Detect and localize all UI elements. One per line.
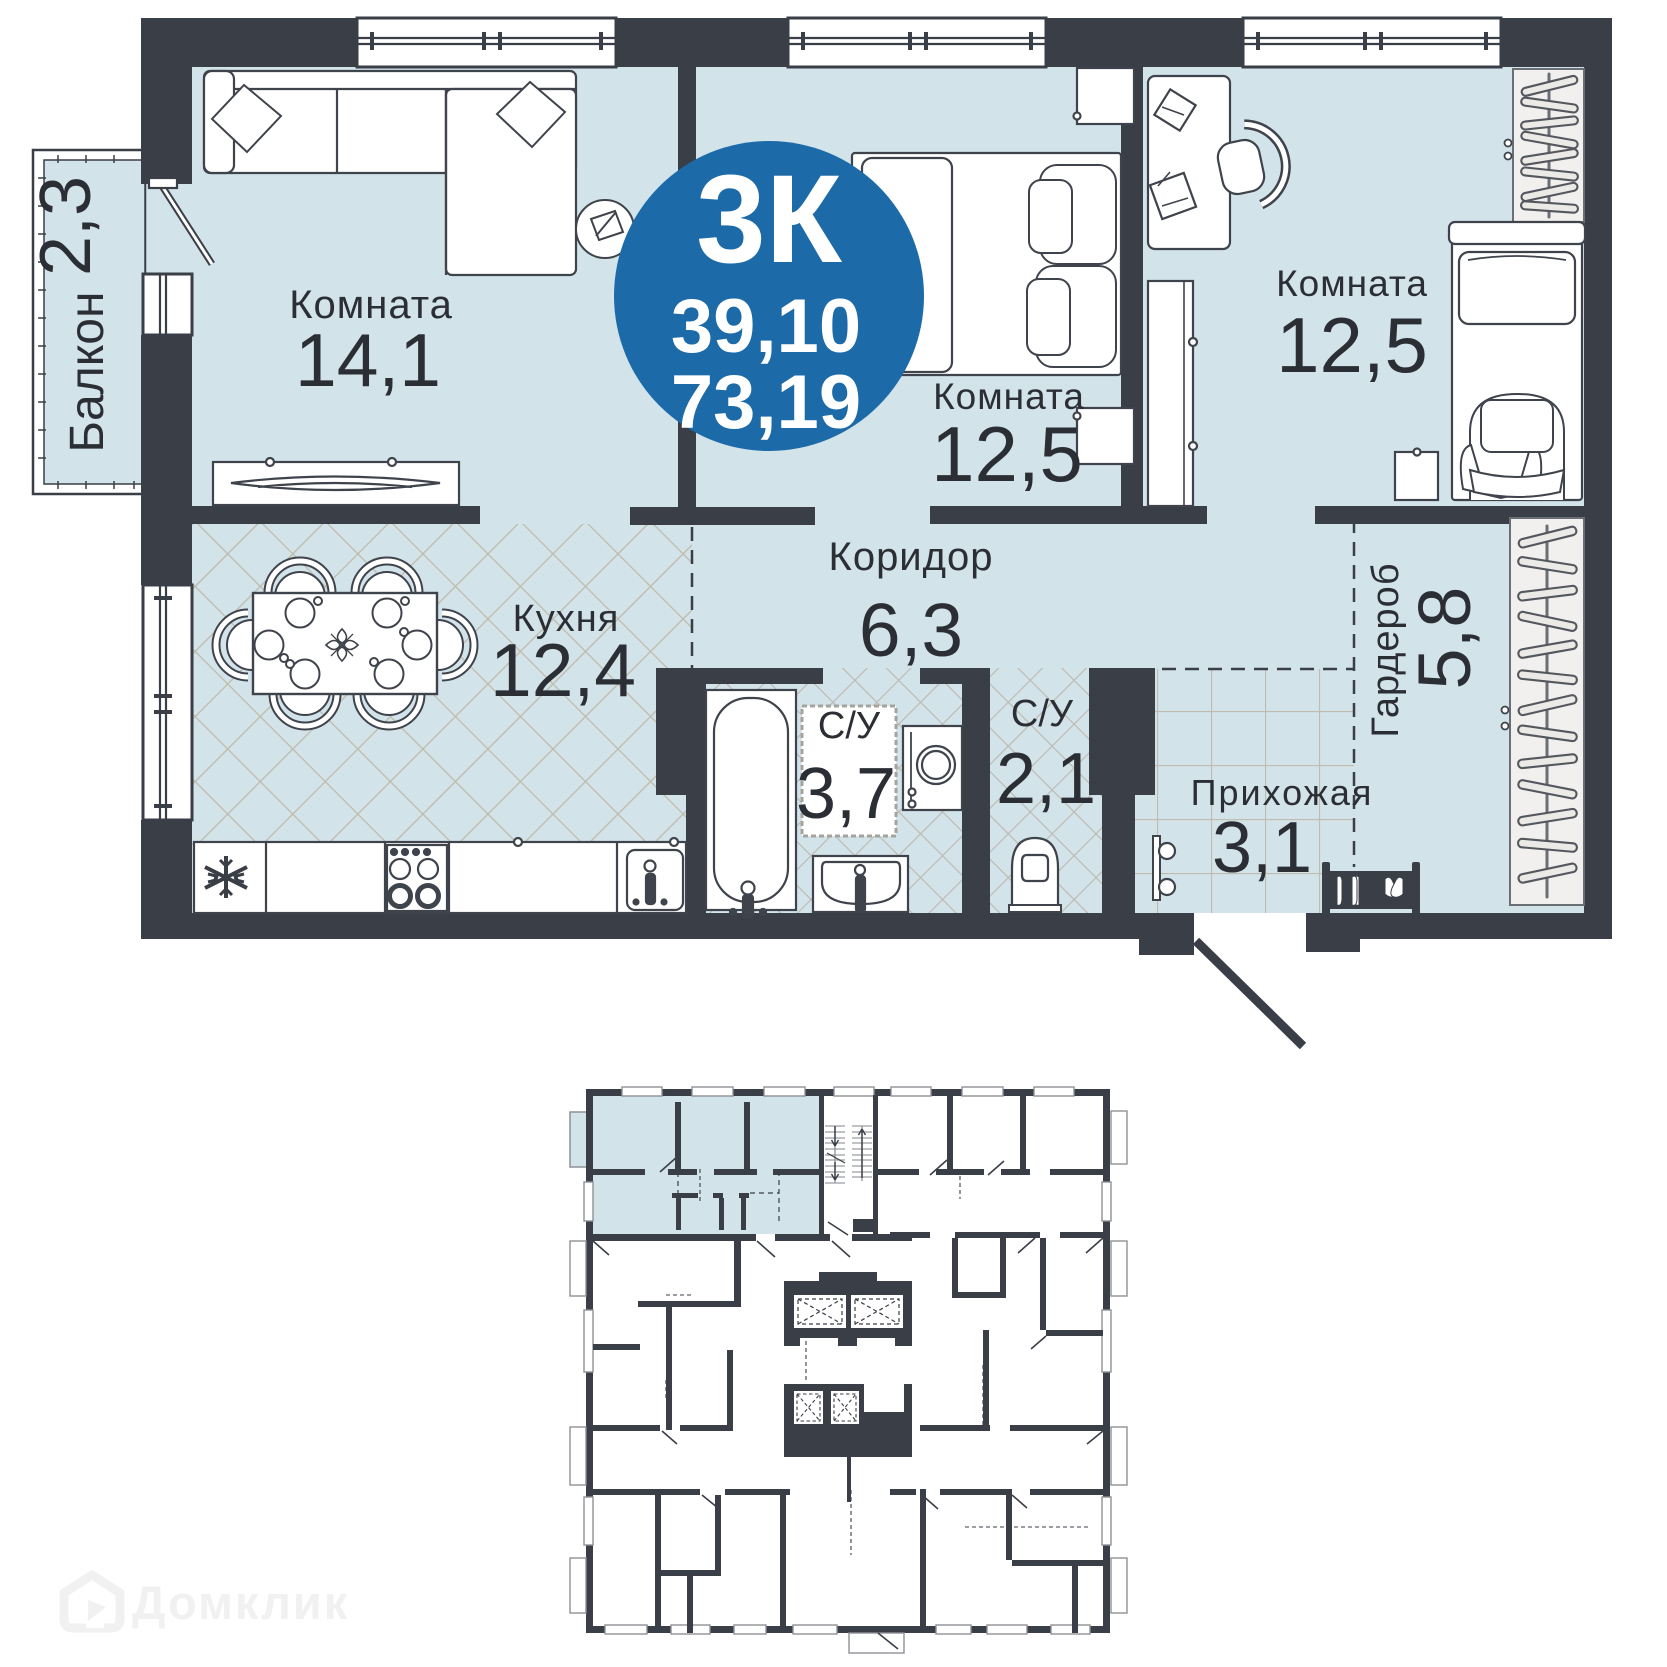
- svg-text:Прихожая: Прихожая: [1191, 772, 1374, 813]
- svg-text:12,5: 12,5: [1276, 301, 1428, 389]
- svg-text:39,10: 39,10: [671, 284, 861, 369]
- svg-text:5,8: 5,8: [1403, 587, 1486, 690]
- svg-text:Гардероб: Гардероб: [1365, 562, 1407, 737]
- svg-text:3К: 3К: [696, 150, 843, 289]
- svg-text:С/У: С/У: [818, 705, 881, 747]
- svg-text:Комната: Комната: [1276, 263, 1428, 304]
- svg-text:6,3: 6,3: [859, 588, 963, 672]
- svg-text:Домклик: Домклик: [132, 1576, 349, 1629]
- svg-text:Балкон: Балкон: [61, 292, 114, 453]
- svg-text:14,1: 14,1: [295, 318, 441, 402]
- svg-text:С/У: С/У: [1011, 693, 1074, 735]
- svg-text:2,3: 2,3: [26, 176, 106, 276]
- svg-text:3,1: 3,1: [1212, 808, 1312, 888]
- svg-text:2,1: 2,1: [996, 739, 1096, 819]
- svg-text:73,19: 73,19: [671, 360, 861, 445]
- svg-text:12,4: 12,4: [490, 628, 636, 712]
- svg-text:Коридор: Коридор: [829, 535, 994, 579]
- svg-text:3,7: 3,7: [796, 754, 896, 834]
- svg-text:12,5: 12,5: [931, 410, 1083, 498]
